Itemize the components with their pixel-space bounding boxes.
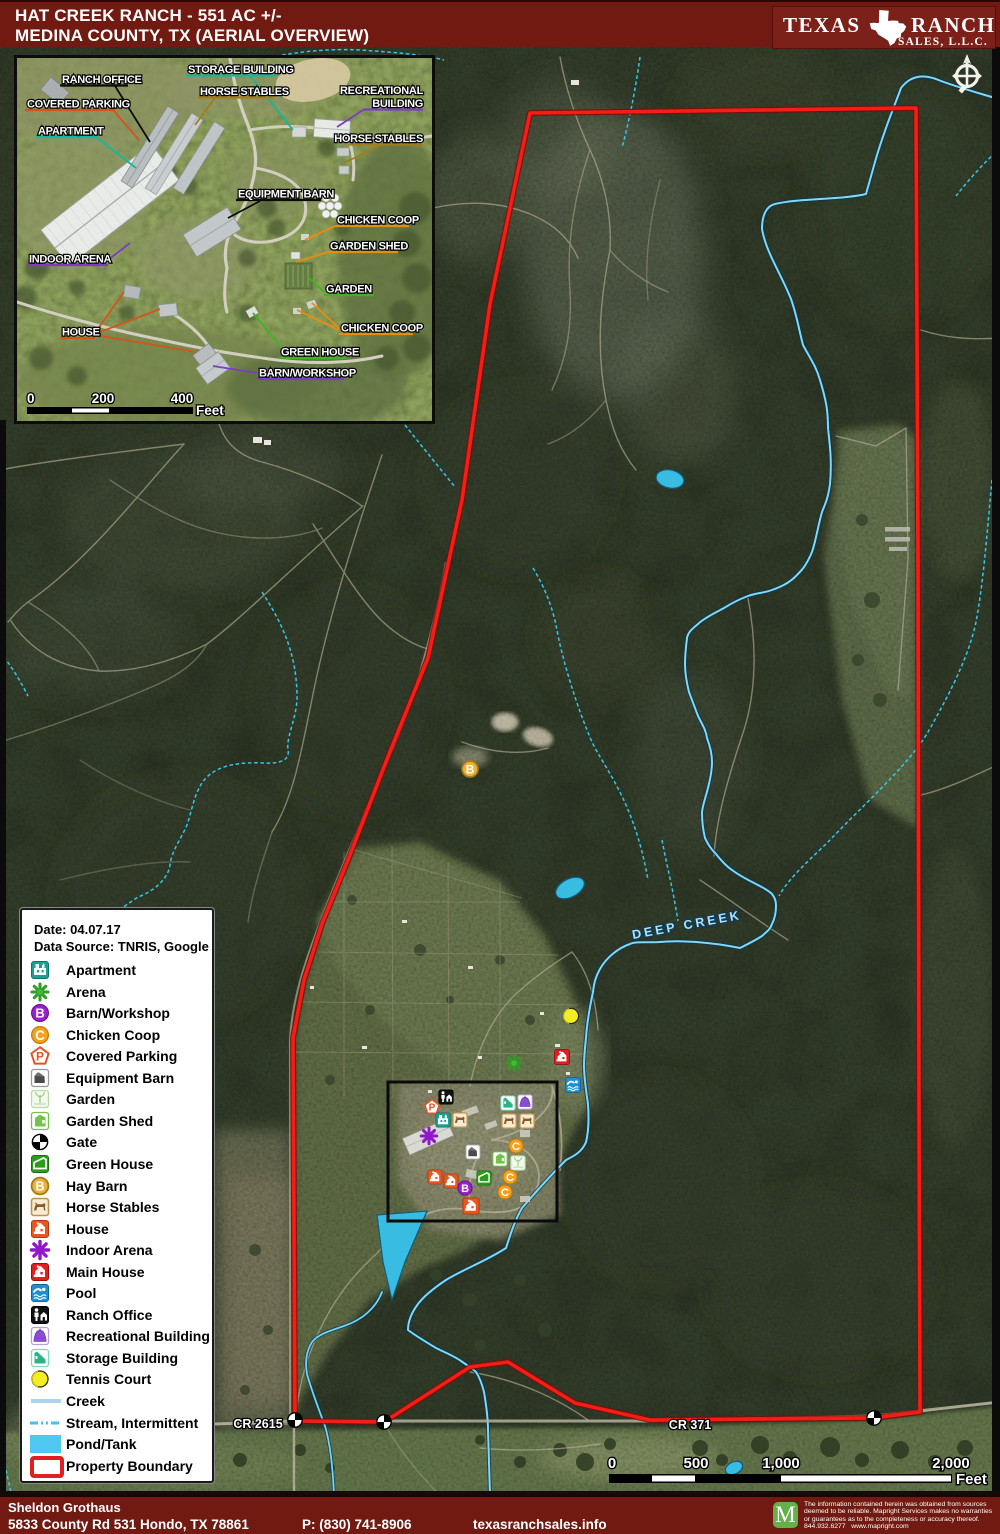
svg-text:400: 400	[171, 391, 194, 406]
svg-text:GREEN HOUSE: GREEN HOUSE	[281, 347, 359, 359]
svg-text:0: 0	[608, 1455, 616, 1472]
svg-text:CHICKEN COOP: CHICKEN COOP	[337, 215, 419, 227]
svg-text:BARN/WORKSHOP: BARN/WORKSHOP	[259, 368, 356, 380]
svg-text:2,000: 2,000	[932, 1455, 970, 1472]
svg-text:RANCH OFFICE: RANCH OFFICE	[62, 74, 142, 86]
svg-text:RECREATIONAL: RECREATIONAL	[340, 85, 424, 97]
svg-text:CR 371: CR 371	[669, 1418, 711, 1432]
svg-text:BUILDING: BUILDING	[372, 98, 423, 110]
svg-text:HOUSE: HOUSE	[62, 327, 100, 339]
svg-text:COVERED PARKING: COVERED PARKING	[27, 99, 130, 111]
svg-text:500: 500	[683, 1455, 708, 1472]
svg-text:CHICKEN COOP: CHICKEN COOP	[341, 323, 423, 335]
svg-text:APARTMENT: APARTMENT	[38, 126, 104, 138]
svg-text:GARDEN SHED: GARDEN SHED	[330, 241, 408, 253]
svg-text:EQUIPMENT BARN: EQUIPMENT BARN	[238, 189, 334, 201]
svg-text:STORAGE BUILDING: STORAGE BUILDING	[188, 64, 294, 76]
svg-text:HORSE STABLES: HORSE STABLES	[200, 86, 289, 98]
svg-text:HORSE STABLES: HORSE STABLES	[334, 133, 423, 145]
svg-text:0: 0	[27, 391, 35, 406]
svg-text:200: 200	[92, 391, 115, 406]
svg-text:GARDEN: GARDEN	[326, 284, 372, 296]
svg-text:Feet: Feet	[196, 403, 224, 418]
svg-text:INDOOR ARENA: INDOOR ARENA	[29, 254, 112, 266]
svg-text:1,000: 1,000	[762, 1455, 800, 1472]
svg-text:CR 2615: CR 2615	[233, 1417, 282, 1431]
svg-text:Feet: Feet	[956, 1471, 987, 1488]
